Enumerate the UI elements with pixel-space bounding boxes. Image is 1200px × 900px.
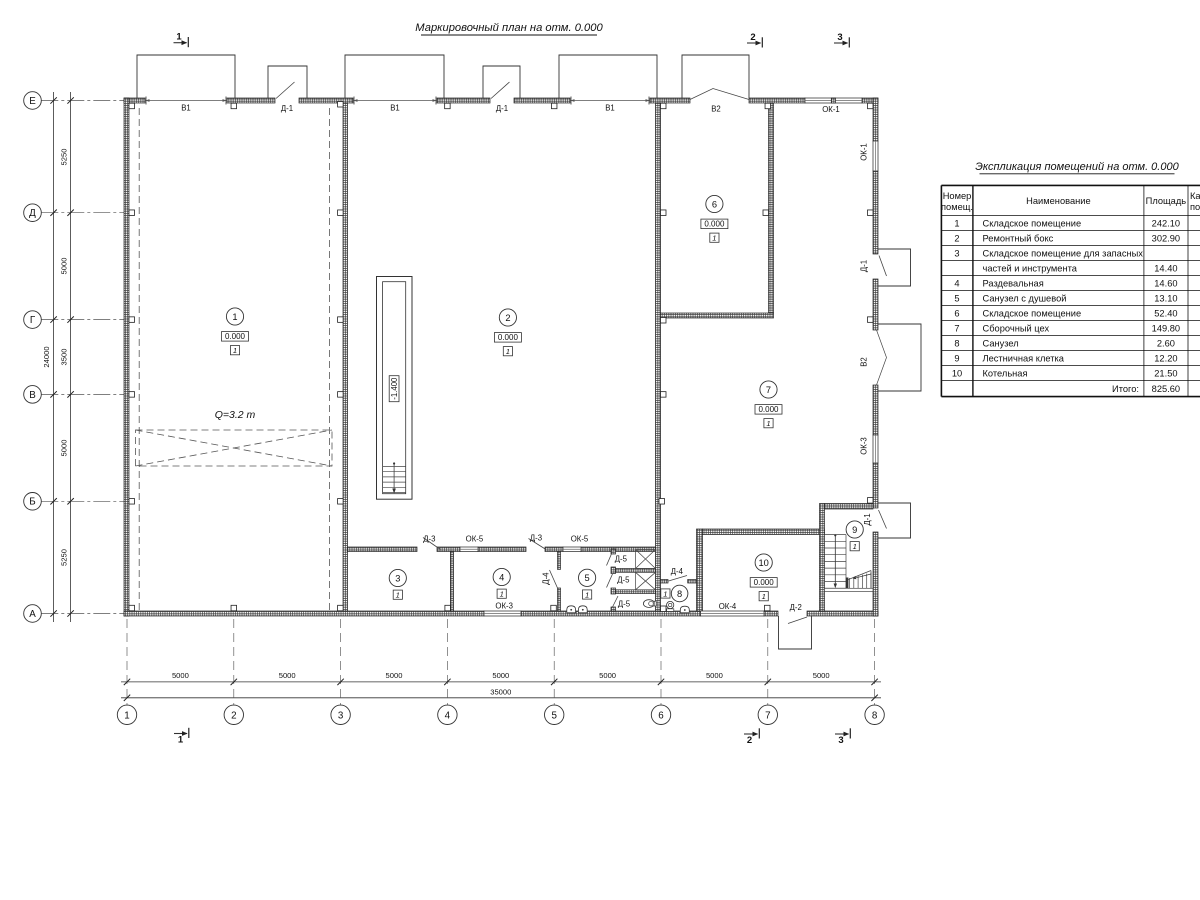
svg-text:5000: 5000 (706, 671, 723, 680)
svg-text:Маркировочный план на отм. 0.0: Маркировочный план на отм. 0.000 (415, 22, 603, 34)
svg-text:2: 2 (747, 735, 752, 746)
svg-text:Сборочный цех: Сборочный цех (983, 324, 1050, 334)
svg-text:1: 1 (396, 591, 400, 600)
svg-text:Раздевальная: Раздевальная (983, 279, 1044, 289)
svg-text:Санузел с душевой: Санузел с душевой (983, 294, 1067, 304)
svg-text:2: 2 (750, 32, 755, 43)
svg-text:7: 7 (765, 710, 770, 721)
svg-text:6: 6 (712, 199, 717, 209)
svg-text:ОК-1: ОК-1 (860, 143, 869, 161)
svg-text:ОК-4: ОК-4 (719, 602, 737, 611)
svg-text:ОК-3: ОК-3 (860, 437, 869, 455)
svg-text:5000: 5000 (386, 671, 403, 680)
svg-text:1: 1 (766, 419, 770, 428)
svg-text:5000: 5000 (492, 671, 509, 680)
svg-text:Д-4: Д-4 (542, 572, 551, 585)
svg-text:В1: В1 (605, 104, 615, 113)
svg-text:302.90: 302.90 (1152, 234, 1180, 244)
svg-text:1: 1 (853, 542, 857, 551)
svg-text:149.80: 149.80 (1152, 324, 1180, 334)
svg-text:5: 5 (551, 710, 557, 721)
svg-text:ОК-5: ОК-5 (571, 535, 589, 544)
svg-text:Д-1: Д-1 (860, 260, 869, 272)
svg-text:0.000: 0.000 (758, 405, 779, 414)
svg-text:2.60: 2.60 (1157, 339, 1175, 349)
svg-text:6: 6 (658, 710, 664, 721)
svg-text:4: 4 (445, 710, 451, 721)
svg-text:3: 3 (395, 573, 400, 583)
svg-text:5000: 5000 (813, 671, 830, 680)
svg-text:5250: 5250 (59, 549, 68, 566)
svg-text:частей и инструмента: частей и инструмента (983, 264, 1078, 274)
svg-text:Д-4: Д-4 (671, 567, 684, 576)
svg-text:10: 10 (759, 558, 769, 568)
svg-text:10: 10 (952, 369, 962, 379)
svg-text:0.000: 0.000 (498, 333, 519, 342)
svg-text:3: 3 (837, 32, 842, 43)
svg-text:Д-3: Д-3 (530, 534, 542, 543)
svg-text:5000: 5000 (59, 258, 68, 275)
svg-text:6: 6 (954, 309, 959, 319)
svg-text:1: 1 (585, 590, 589, 599)
svg-text:ОК-5: ОК-5 (466, 535, 484, 544)
svg-text:4: 4 (954, 279, 959, 289)
svg-text:3: 3 (338, 710, 344, 721)
svg-text:Д-1: Д-1 (281, 104, 293, 113)
svg-text:12.20: 12.20 (1154, 354, 1177, 364)
svg-text:1: 1 (712, 234, 716, 243)
svg-text:825.60: 825.60 (1152, 384, 1180, 394)
svg-text:Лестничная клетка: Лестничная клетка (983, 354, 1065, 364)
svg-text:Д-5: Д-5 (615, 555, 628, 564)
svg-text:Складское помещение: Складское помещение (983, 219, 1082, 229)
svg-text:52.40: 52.40 (1154, 309, 1177, 319)
svg-text:0.000: 0.000 (225, 332, 246, 341)
svg-text:Д-5: Д-5 (618, 600, 631, 609)
svg-text:242.10: 242.10 (1152, 219, 1180, 229)
svg-text:-1.400: -1.400 (390, 377, 399, 400)
svg-text:8: 8 (872, 710, 878, 721)
svg-text:Г: Г (30, 315, 36, 326)
svg-text:1: 1 (663, 589, 667, 598)
svg-text:24000: 24000 (42, 346, 51, 367)
svg-text:Б: Б (29, 497, 35, 508)
svg-text:Складское помещение для запасн: Складское помещение для запасных (983, 249, 1144, 259)
svg-text:2: 2 (505, 313, 510, 323)
svg-text:Д-5: Д-5 (617, 576, 630, 585)
svg-text:Номер: Номер (943, 191, 972, 201)
svg-text:1: 1 (233, 346, 237, 355)
svg-text:3: 3 (838, 735, 843, 746)
svg-text:14.60: 14.60 (1154, 279, 1177, 289)
svg-text:2: 2 (231, 710, 236, 721)
svg-text:9: 9 (954, 354, 959, 364)
svg-text:А: А (29, 609, 36, 620)
svg-text:14.40: 14.40 (1154, 264, 1177, 274)
svg-text:Ка: Ка (1190, 191, 1200, 201)
svg-text:ОК-3: ОК-3 (495, 602, 513, 611)
svg-text:1: 1 (762, 592, 766, 601)
svg-text:Д: Д (29, 208, 36, 219)
svg-text:4: 4 (499, 572, 504, 582)
svg-text:Котельная: Котельная (983, 369, 1028, 379)
svg-text:8: 8 (677, 589, 682, 599)
svg-text:0.000: 0.000 (754, 578, 775, 587)
svg-text:2: 2 (954, 234, 959, 244)
svg-text:Д-2: Д-2 (790, 603, 802, 612)
svg-text:В1: В1 (390, 104, 400, 113)
svg-text:35000: 35000 (490, 688, 511, 697)
svg-text:21.50: 21.50 (1154, 369, 1177, 379)
svg-text:5000: 5000 (279, 671, 296, 680)
svg-text:1: 1 (506, 347, 510, 356)
svg-text:5250: 5250 (59, 149, 68, 166)
svg-text:1: 1 (954, 219, 959, 229)
svg-text:1: 1 (500, 590, 504, 599)
svg-text:Площадь: Площадь (1146, 196, 1187, 206)
svg-text:В2: В2 (860, 357, 869, 367)
svg-text:Санузел: Санузел (983, 339, 1019, 349)
svg-text:9: 9 (852, 525, 857, 535)
svg-text:помещ.: помещ. (941, 202, 973, 212)
svg-text:Итого:: Итого: (1112, 384, 1139, 394)
svg-text:5000: 5000 (59, 440, 68, 457)
svg-text:Складское помещение: Складское помещение (983, 309, 1082, 319)
svg-text:7: 7 (954, 324, 959, 334)
svg-text:Д-3: Д-3 (423, 535, 435, 544)
svg-text:по: по (1190, 202, 1200, 212)
svg-text:5: 5 (585, 573, 590, 583)
svg-text:Е: Е (29, 96, 36, 107)
svg-text:В: В (29, 390, 36, 401)
svg-text:0.000: 0.000 (704, 220, 725, 229)
svg-text:5000: 5000 (599, 671, 616, 680)
svg-text:5: 5 (954, 294, 959, 304)
svg-text:1: 1 (176, 32, 182, 43)
svg-text:Д-1: Д-1 (863, 513, 872, 525)
svg-text:3500: 3500 (59, 349, 68, 366)
svg-text:Наименование: Наименование (1026, 196, 1090, 206)
svg-text:В2: В2 (711, 105, 721, 114)
svg-text:7: 7 (766, 385, 771, 395)
svg-text:Ремонтный бокс: Ремонтный бокс (983, 234, 1054, 244)
svg-text:1: 1 (124, 710, 129, 721)
svg-text:1: 1 (178, 735, 184, 746)
svg-text:1: 1 (232, 312, 237, 322)
svg-text:3: 3 (954, 249, 959, 259)
svg-text:Q=3.2 т: Q=3.2 т (215, 409, 256, 421)
svg-text:8: 8 (954, 339, 959, 349)
svg-text:ОК-1: ОК-1 (822, 105, 840, 114)
svg-text:В1: В1 (181, 104, 191, 113)
svg-text:Экспликация помещений на отм.: Экспликация помещений на отм. 0.000 (975, 161, 1179, 173)
svg-text:13.10: 13.10 (1154, 294, 1177, 304)
svg-text:5000: 5000 (172, 671, 189, 680)
svg-text:Д-1: Д-1 (496, 104, 508, 113)
